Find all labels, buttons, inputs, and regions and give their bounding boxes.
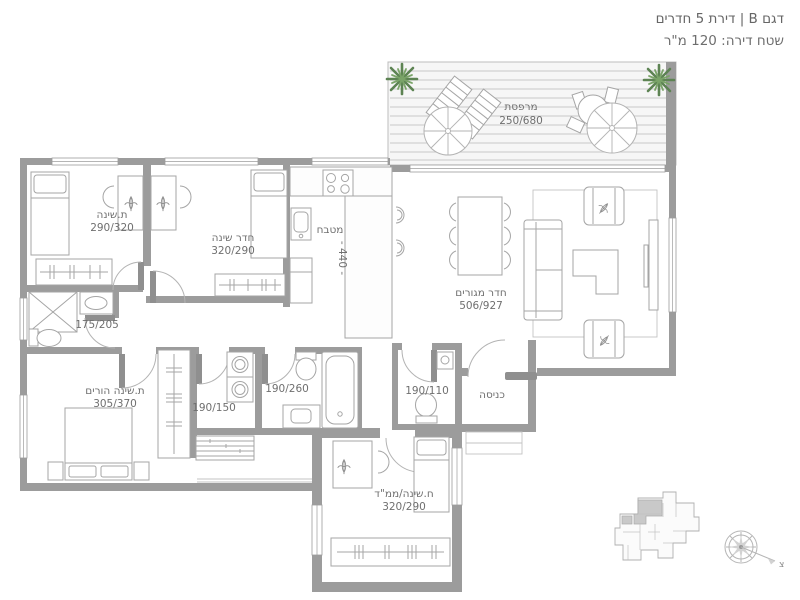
kitchen-label: מטבח <box>317 224 344 236</box>
toilet <box>29 329 61 347</box>
parents-bedroom-label: ת.שינה הורים <box>85 385 144 397</box>
armchair <box>584 187 624 225</box>
entrance-label: כניסה <box>479 389 505 401</box>
floor-plan-page: דגם B | דירת 5 חדרים שטח דירה: 120 מ"ר <box>0 0 800 600</box>
corridor <box>196 436 312 482</box>
desk <box>333 441 389 488</box>
terrace-umbrella-left <box>424 107 472 155</box>
dining-table <box>450 197 511 275</box>
washer <box>227 352 253 377</box>
bed <box>251 170 287 258</box>
laundry-door <box>196 354 229 384</box>
safe-room-label: ח.שינה/ממ"ד <box>374 488 433 500</box>
safe-room: ח.שינה/ממ"ד 320/290 <box>331 437 450 566</box>
terrace-dims: 250/680 <box>499 115 543 127</box>
bathroom-main-dims: 190/260 <box>265 383 309 395</box>
building-key-plan <box>615 492 699 560</box>
kitchen-dims: - 440 - <box>336 241 348 276</box>
sofa <box>524 220 562 320</box>
window <box>20 395 27 458</box>
laundry-dims: 190/150 <box>192 402 236 414</box>
toilet <box>416 394 438 424</box>
nightstand <box>134 462 149 480</box>
nightstand <box>48 462 63 480</box>
shelf-unit <box>196 436 254 460</box>
bedroom2-dims: 320/290 <box>211 245 255 257</box>
kitchen-sink <box>291 208 311 240</box>
compass-rose: צ <box>725 531 784 570</box>
bed <box>31 172 69 255</box>
shower <box>29 292 77 332</box>
floor-plan-svg: מרפסת 250/680 <box>0 0 800 600</box>
terrace-umbrella-right <box>587 103 637 153</box>
terrace-label: מרפסת <box>504 101 537 113</box>
wardrobe <box>331 538 450 566</box>
armchair <box>584 320 624 358</box>
guest-toilet-dims: 190/110 <box>405 385 449 397</box>
living-room-dims: 506/927 <box>459 300 503 312</box>
bathroom-main-door <box>262 354 295 384</box>
window <box>669 218 676 312</box>
safe-room-dims: 320/290 <box>382 501 426 513</box>
kitchen: מטבח - 440 - <box>290 167 404 338</box>
terrace: מרפסת 250/680 <box>387 62 676 165</box>
window <box>312 158 388 165</box>
guest-toilet: 190/110 <box>405 352 453 423</box>
kitchen-cabinet <box>290 258 312 303</box>
tv-console <box>644 220 658 310</box>
dryer <box>227 377 253 402</box>
bar-stools <box>396 207 404 256</box>
window <box>165 158 258 165</box>
wardrobe <box>215 274 285 296</box>
entrance-door <box>468 340 537 380</box>
window <box>410 165 665 172</box>
sink <box>437 352 453 369</box>
bathtub <box>322 352 358 428</box>
bathroom-small-dims: 175/205 <box>75 319 119 331</box>
window <box>312 505 322 555</box>
stove <box>323 170 353 196</box>
bedroom1-label: ת.שינה <box>96 209 127 221</box>
window <box>452 448 462 505</box>
sink <box>283 405 320 428</box>
north-label: צ <box>779 560 784 570</box>
living-room: חדר מגורים 506/927 <box>450 187 658 358</box>
bedroom1: ת.שינה 290/320 <box>31 172 143 285</box>
wardrobe <box>158 350 190 458</box>
sink <box>80 292 113 314</box>
bathroom-small: 175/205 <box>29 292 119 347</box>
parents-bedroom-dims: 305/370 <box>93 398 137 410</box>
guest-toilet-door <box>402 350 437 382</box>
entrance: כניסה <box>466 389 522 454</box>
living-room-label: חדר מגורים <box>455 287 506 299</box>
double-bed <box>48 408 149 480</box>
toilet <box>296 352 316 380</box>
kitchen-island <box>345 196 392 338</box>
bedroom1-dims: 290/320 <box>90 222 134 234</box>
bedroom2-label: חדר שינה <box>212 232 255 244</box>
coffee-table <box>573 250 618 294</box>
parents-bedroom-door <box>119 354 156 388</box>
window <box>20 298 27 340</box>
window <box>52 158 118 165</box>
bathroom-main: 190/260 <box>265 352 358 428</box>
desk <box>151 176 191 230</box>
wardrobe <box>36 259 112 285</box>
